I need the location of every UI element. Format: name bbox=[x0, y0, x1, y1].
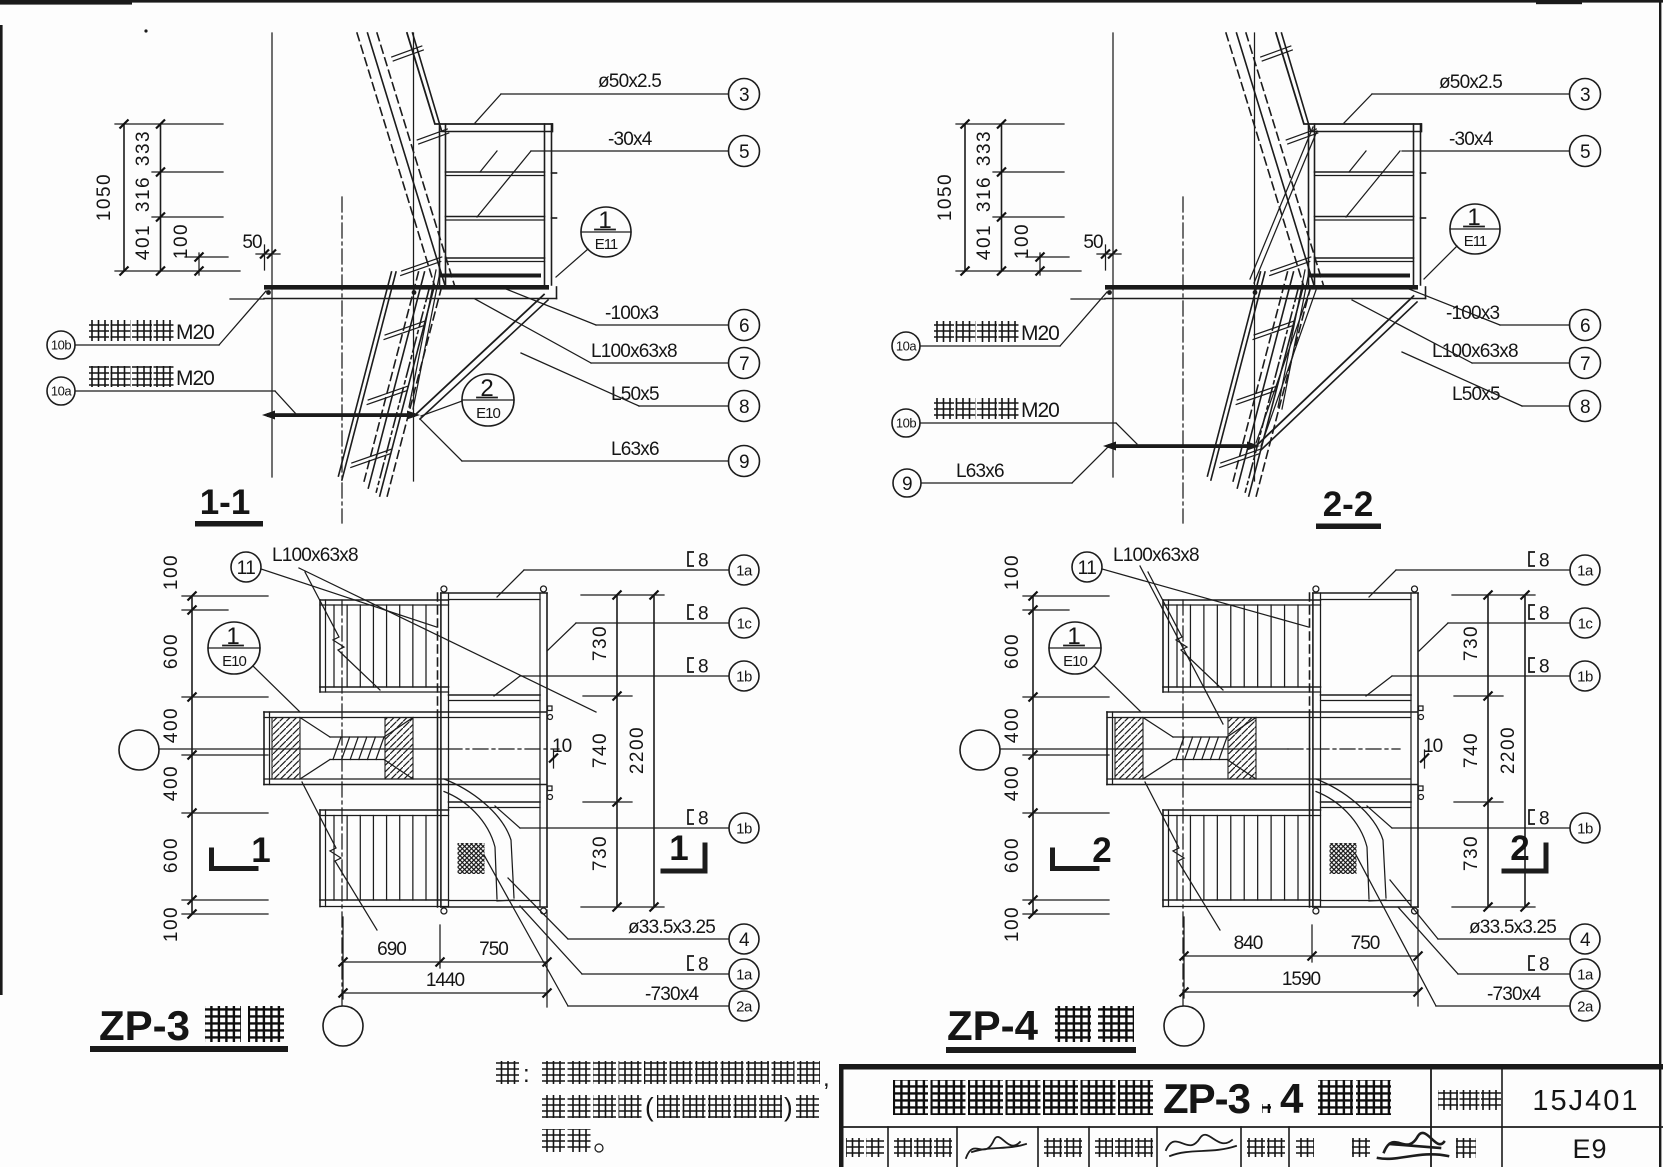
svg-text:11: 11 bbox=[237, 558, 256, 579]
svg-text:-30x4: -30x4 bbox=[608, 129, 653, 150]
svg-text::: : bbox=[523, 1061, 530, 1088]
svg-text:ø50x2.5: ø50x2.5 bbox=[1439, 72, 1502, 93]
svg-text:100: 100 bbox=[161, 906, 182, 942]
svg-text:730: 730 bbox=[1461, 625, 1482, 661]
svg-text:10: 10 bbox=[1423, 736, 1443, 757]
svg-text:3: 3 bbox=[739, 85, 749, 106]
svg-text:1b: 1b bbox=[736, 820, 752, 837]
svg-text:750: 750 bbox=[479, 939, 508, 960]
svg-text:316: 316 bbox=[974, 176, 995, 212]
svg-text:5: 5 bbox=[1580, 142, 1590, 163]
svg-text:100: 100 bbox=[1012, 223, 1033, 259]
svg-text:,: , bbox=[823, 1065, 830, 1092]
svg-text:3: 3 bbox=[1580, 85, 1590, 106]
svg-text:740: 740 bbox=[590, 732, 611, 768]
svg-text:1b: 1b bbox=[1577, 668, 1593, 685]
svg-text:10: 10 bbox=[552, 736, 572, 757]
svg-text:1a: 1a bbox=[1577, 966, 1594, 983]
svg-text:600: 600 bbox=[1002, 837, 1023, 873]
svg-text:E9: E9 bbox=[1572, 1134, 1607, 1164]
svg-text:100: 100 bbox=[161, 554, 182, 590]
svg-text:(: ( bbox=[645, 1092, 654, 1122]
svg-text:-730x4: -730x4 bbox=[1487, 984, 1542, 1005]
svg-text:9: 9 bbox=[902, 474, 912, 495]
svg-text:100: 100 bbox=[171, 223, 192, 259]
svg-text:ø50x2.5: ø50x2.5 bbox=[598, 71, 661, 92]
svg-text:100: 100 bbox=[1002, 906, 1023, 942]
svg-text:-730x4: -730x4 bbox=[645, 984, 700, 1005]
svg-text:1c: 1c bbox=[1578, 615, 1594, 632]
svg-text:2: 2 bbox=[1092, 831, 1111, 870]
svg-text:1050: 1050 bbox=[935, 173, 956, 221]
svg-text:M20: M20 bbox=[176, 367, 214, 390]
svg-text:L63x6: L63x6 bbox=[956, 461, 1004, 482]
svg-text:1: 1 bbox=[251, 831, 270, 870]
svg-text:400: 400 bbox=[161, 707, 182, 743]
svg-text:400: 400 bbox=[161, 765, 182, 801]
svg-text:-30x4: -30x4 bbox=[1449, 129, 1494, 150]
svg-text:730: 730 bbox=[1461, 835, 1482, 871]
svg-text:ø33.5x3.25: ø33.5x3.25 bbox=[628, 917, 715, 938]
svg-text:E10: E10 bbox=[1063, 653, 1087, 670]
svg-text:730: 730 bbox=[590, 835, 611, 871]
svg-text:50: 50 bbox=[1083, 232, 1103, 253]
svg-text:L50x5: L50x5 bbox=[611, 384, 659, 405]
svg-text:1b: 1b bbox=[1577, 820, 1593, 837]
svg-text:11: 11 bbox=[1078, 558, 1097, 579]
svg-text:8: 8 bbox=[1580, 397, 1590, 418]
svg-text:E10: E10 bbox=[222, 653, 246, 670]
svg-text:ø33.5x3.25: ø33.5x3.25 bbox=[1469, 917, 1556, 938]
svg-text:-100x3: -100x3 bbox=[605, 303, 659, 324]
svg-text:ZP-3: ZP-3 bbox=[99, 1002, 190, 1049]
svg-text:400: 400 bbox=[1002, 707, 1023, 743]
svg-text:50: 50 bbox=[242, 232, 262, 253]
svg-text:1a: 1a bbox=[1577, 562, 1594, 579]
svg-text:4: 4 bbox=[1280, 1075, 1304, 1122]
svg-text:8: 8 bbox=[739, 397, 749, 418]
svg-text:690: 690 bbox=[377, 939, 406, 960]
svg-text:333: 333 bbox=[974, 130, 995, 166]
svg-text:400: 400 bbox=[1002, 765, 1023, 801]
svg-text:10a: 10a bbox=[51, 384, 72, 399]
svg-text:1c: 1c bbox=[737, 615, 753, 632]
svg-text:10b: 10b bbox=[896, 416, 916, 431]
svg-text:2a: 2a bbox=[1577, 998, 1594, 1015]
svg-text:4: 4 bbox=[739, 930, 750, 951]
svg-text:4: 4 bbox=[1580, 930, 1591, 951]
svg-text:2-2: 2-2 bbox=[1323, 485, 1374, 524]
svg-text:1a: 1a bbox=[736, 966, 753, 983]
svg-text:600: 600 bbox=[1002, 633, 1023, 669]
svg-text:7: 7 bbox=[739, 354, 749, 375]
svg-text:1-1: 1-1 bbox=[200, 483, 251, 522]
svg-text:6: 6 bbox=[739, 316, 749, 337]
svg-text:740: 740 bbox=[1461, 732, 1482, 768]
svg-text:10a: 10a bbox=[896, 339, 917, 354]
svg-text:L63x6: L63x6 bbox=[611, 439, 659, 460]
svg-text:1440: 1440 bbox=[426, 970, 465, 991]
svg-text:1b: 1b bbox=[736, 668, 752, 685]
svg-text:E11: E11 bbox=[595, 236, 618, 253]
svg-text:750: 750 bbox=[1351, 933, 1380, 954]
svg-text:9: 9 bbox=[739, 452, 749, 473]
svg-text:ZP-4: ZP-4 bbox=[947, 1002, 1039, 1049]
svg-text:): ) bbox=[784, 1092, 793, 1122]
svg-text:1590: 1590 bbox=[1282, 969, 1321, 990]
svg-text:15J401: 15J401 bbox=[1532, 1085, 1639, 1117]
svg-text:1050: 1050 bbox=[94, 173, 115, 221]
svg-text:600: 600 bbox=[161, 837, 182, 873]
svg-text:7: 7 bbox=[1580, 354, 1590, 375]
svg-text:M20: M20 bbox=[176, 321, 214, 344]
svg-text:730: 730 bbox=[590, 625, 611, 661]
svg-text:L50x5: L50x5 bbox=[1452, 384, 1500, 405]
svg-text:E10: E10 bbox=[476, 405, 500, 422]
svg-text:1: 1 bbox=[669, 829, 688, 868]
svg-text:2200: 2200 bbox=[627, 726, 648, 774]
svg-text:401: 401 bbox=[974, 224, 995, 260]
svg-text:6: 6 bbox=[1580, 316, 1590, 337]
svg-text:ZP-3: ZP-3 bbox=[1163, 1075, 1250, 1122]
svg-text:M20: M20 bbox=[1021, 322, 1059, 345]
svg-text:E11: E11 bbox=[1464, 233, 1487, 250]
svg-text:M20: M20 bbox=[1021, 399, 1059, 422]
svg-text:2a: 2a bbox=[736, 998, 753, 1015]
svg-text:1a: 1a bbox=[736, 562, 753, 579]
svg-text:401: 401 bbox=[133, 224, 154, 260]
svg-text:333: 333 bbox=[133, 130, 154, 166]
svg-text:100: 100 bbox=[1002, 554, 1023, 590]
svg-text:316: 316 bbox=[133, 176, 154, 212]
svg-text:2: 2 bbox=[1510, 829, 1529, 868]
svg-text:2200: 2200 bbox=[1498, 726, 1519, 774]
svg-text:10b: 10b bbox=[51, 338, 71, 353]
svg-text:L100x63x8: L100x63x8 bbox=[591, 341, 677, 362]
svg-text:L100x63x8: L100x63x8 bbox=[272, 545, 358, 566]
svg-text:5: 5 bbox=[739, 142, 749, 163]
svg-text:600: 600 bbox=[161, 633, 182, 669]
svg-text:L100x63x8: L100x63x8 bbox=[1113, 545, 1199, 566]
svg-text:L100x63x8: L100x63x8 bbox=[1432, 341, 1518, 362]
svg-text:840: 840 bbox=[1234, 933, 1263, 954]
